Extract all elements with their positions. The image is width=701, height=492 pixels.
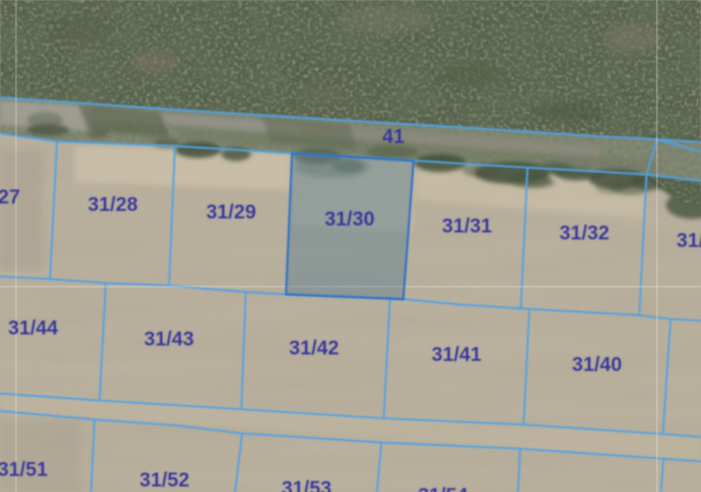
svg-text:31/32: 31/32 [559,223,609,245]
svg-text:31/52: 31/52 [139,470,189,492]
svg-text:31/40: 31/40 [572,354,622,376]
svg-text:31/51: 31/51 [0,459,48,481]
svg-text:27: 27 [0,187,20,209]
svg-text:31/29: 31/29 [206,202,256,224]
svg-text:31/30: 31/30 [325,208,375,230]
svg-text:31/44: 31/44 [8,318,59,340]
svg-text:31/28: 31/28 [88,194,138,216]
svg-text:31/33: 31/33 [676,230,701,252]
svg-text:31/42: 31/42 [289,338,339,360]
svg-text:31/31: 31/31 [442,216,492,238]
svg-text:31/43: 31/43 [144,329,194,351]
svg-text:31/53: 31/53 [282,478,332,492]
svg-text:41: 41 [382,126,404,148]
svg-text:31/41: 31/41 [431,344,481,366]
svg-text:31/54: 31/54 [418,485,469,492]
